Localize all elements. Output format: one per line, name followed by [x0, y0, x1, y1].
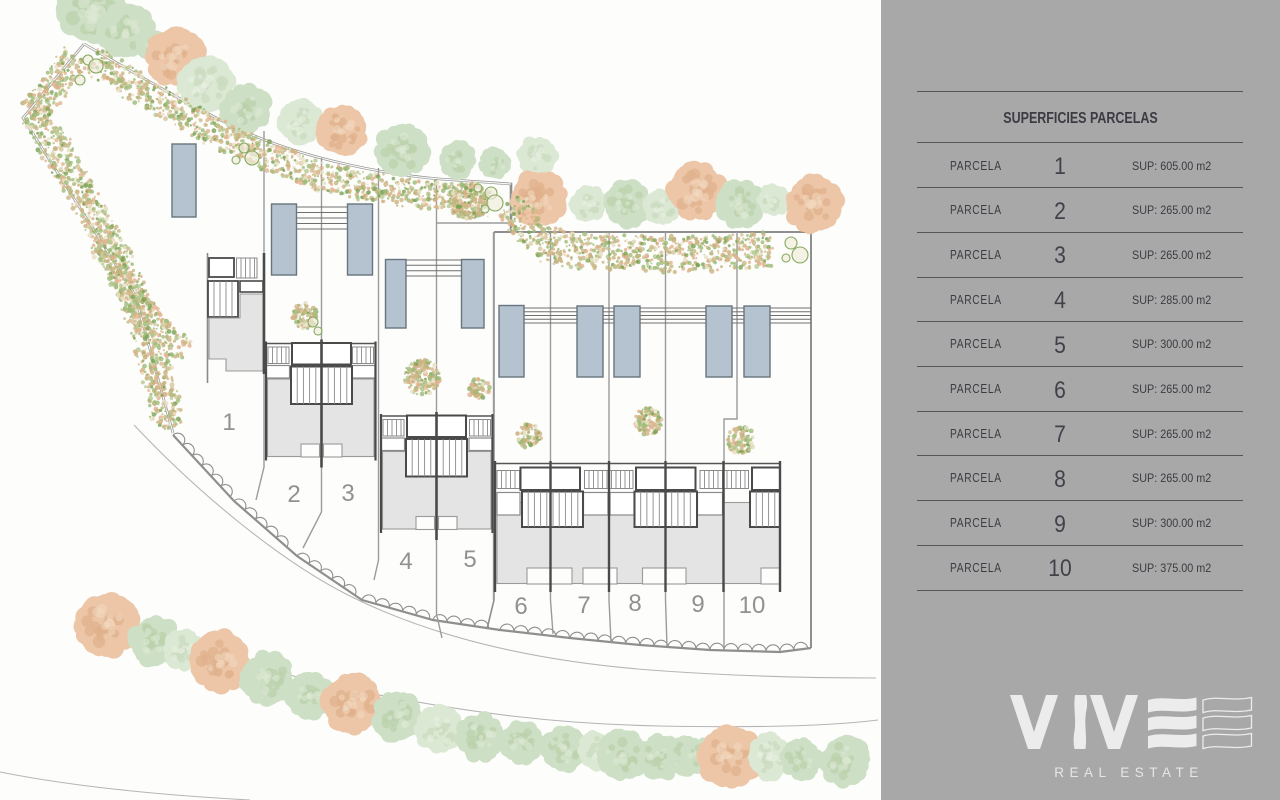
svg-text:3: 3	[341, 480, 354, 507]
svg-text:4: 4	[399, 548, 412, 575]
svg-text:1: 1	[222, 409, 235, 436]
svg-text:7: 7	[577, 592, 590, 619]
svg-text:8: 8	[628, 590, 641, 617]
svg-text:2: 2	[287, 481, 300, 508]
svg-text:6: 6	[514, 593, 527, 620]
svg-text:5: 5	[463, 546, 476, 573]
svg-text:9: 9	[691, 591, 704, 618]
svg-text:10: 10	[739, 592, 766, 619]
